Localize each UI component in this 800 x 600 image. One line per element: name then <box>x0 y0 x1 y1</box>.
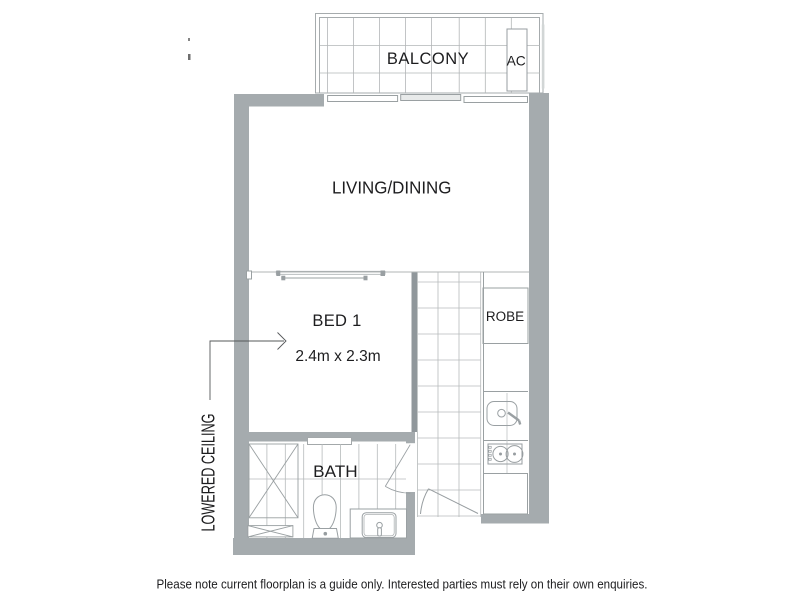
svg-text:2.4m x 2.3m: 2.4m x 2.3m <box>295 348 380 365</box>
svg-text:BALCONY: BALCONY <box>387 50 469 68</box>
svg-text:LIVING/DINING: LIVING/DINING <box>332 178 452 198</box>
svg-text:ROBE: ROBE <box>486 309 524 324</box>
svg-text:BATH: BATH <box>313 462 358 481</box>
svg-text:Please note current floorplan: Please note current floorplan is a guide… <box>157 578 648 592</box>
svg-text:LOWERED CEILING: LOWERED CEILING <box>198 414 219 532</box>
svg-text:BED 1: BED 1 <box>312 312 361 330</box>
svg-text:AC: AC <box>507 53 526 68</box>
